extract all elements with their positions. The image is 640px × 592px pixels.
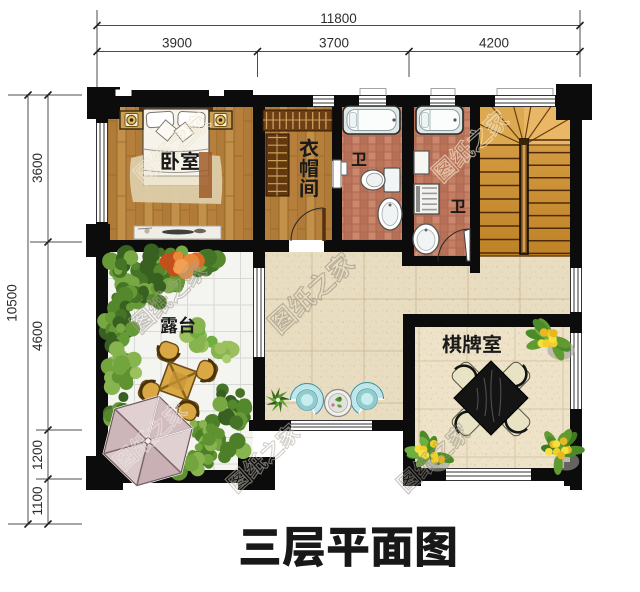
svg-text:10500: 10500 [5,284,20,322]
svg-text:3600: 3600 [30,153,45,183]
svg-text:3900: 3900 [162,36,192,51]
svg-text:3700: 3700 [319,36,349,51]
svg-text:4600: 4600 [30,321,45,351]
svg-text:11800: 11800 [320,11,357,26]
svg-text:1200: 1200 [30,440,45,470]
svg-text:4200: 4200 [479,36,509,51]
svg-text:1100: 1100 [30,486,45,515]
